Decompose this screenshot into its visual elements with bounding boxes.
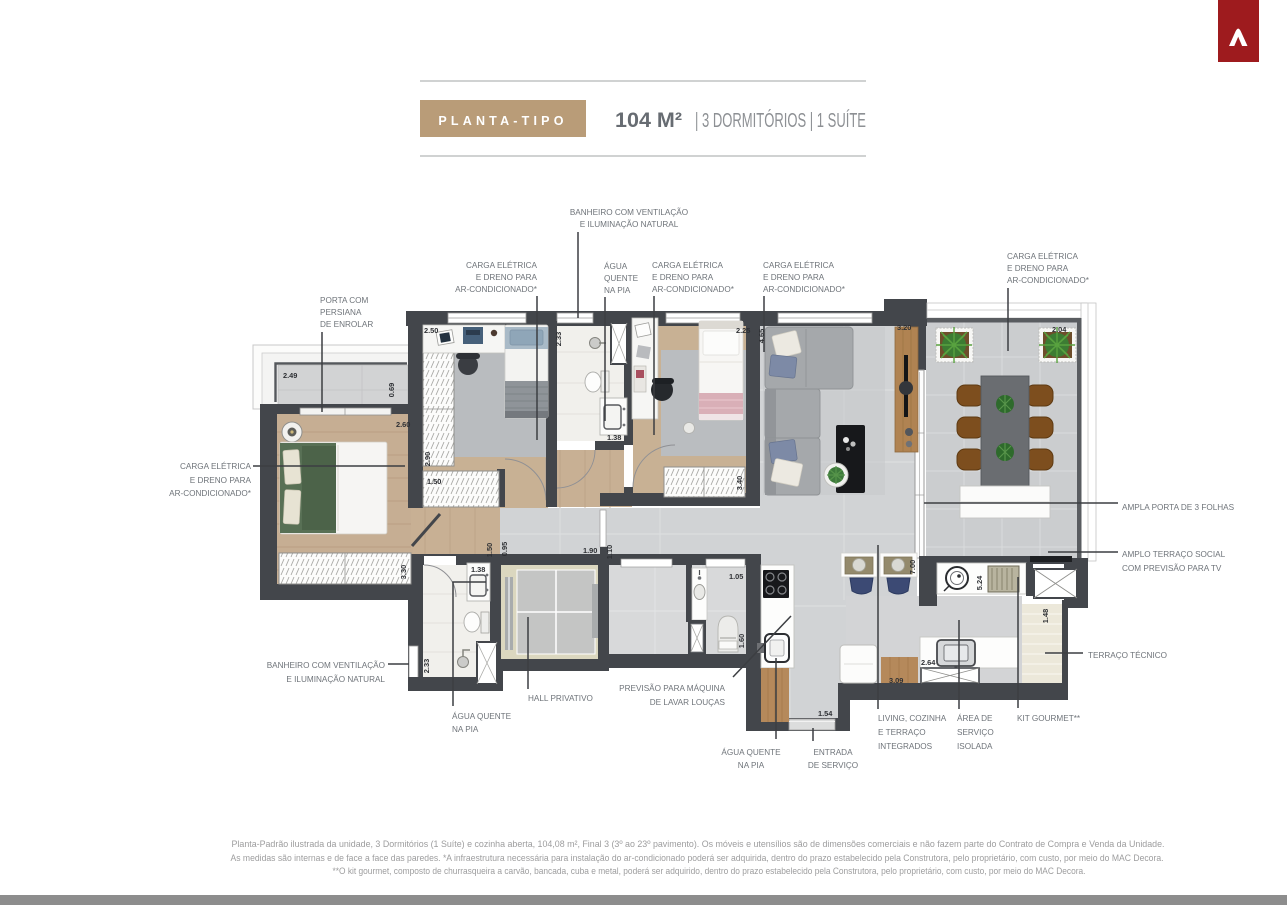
svg-text:2.25: 2.25	[736, 326, 750, 335]
svg-text:1.50: 1.50	[427, 477, 441, 486]
svg-text:HALL PRIVATIVO: HALL PRIVATIVO	[528, 694, 593, 703]
svg-text:3.40: 3.40	[735, 476, 744, 490]
svg-text:| 3 DORMITÓRIOS | 1 SUÍTE: | 3 DORMITÓRIOS | 1 SUÍTE	[695, 109, 866, 132]
svg-text:E ILUMINAÇÃO NATURAL: E ILUMINAÇÃO NATURAL	[580, 219, 679, 229]
svg-text:1.54: 1.54	[818, 709, 833, 718]
svg-text:2.50: 2.50	[424, 326, 438, 335]
svg-text:As medidas são internas e de f: As medidas são internas e de face a face…	[231, 853, 1164, 863]
svg-text:ÁGUA QUENTE: ÁGUA QUENTE	[452, 711, 512, 721]
svg-text:2.60: 2.60	[396, 420, 410, 429]
svg-text:Planta-Padrão ilustrada da uni: Planta-Padrão ilustrada da unidade, 3 Do…	[232, 839, 1165, 849]
svg-text:KIT GOURMET**: KIT GOURMET**	[1017, 714, 1081, 723]
svg-text:CARGA ELÉTRICA: CARGA ELÉTRICA	[1007, 251, 1079, 261]
svg-text:5.24: 5.24	[975, 575, 984, 590]
svg-text:104 M²: 104 M²	[615, 109, 682, 132]
svg-text:SERVIÇO: SERVIÇO	[957, 728, 994, 737]
svg-text:AMPLO TERRAÇO SOCIAL: AMPLO TERRAÇO SOCIAL	[1122, 550, 1226, 559]
svg-text:PORTA COM: PORTA COM	[320, 296, 369, 305]
svg-text:1.38: 1.38	[607, 433, 621, 442]
svg-text:2.64: 2.64	[921, 658, 936, 667]
svg-text:3.20: 3.20	[897, 323, 911, 332]
svg-text:CARGA ELÉTRICA: CARGA ELÉTRICA	[466, 260, 538, 270]
svg-text:AMPLA PORTA DE 3 FOLHAS: AMPLA PORTA DE 3 FOLHAS	[1122, 503, 1235, 512]
svg-text:AR-CONDICIONADO*: AR-CONDICIONADO*	[455, 285, 538, 294]
svg-text:NA PIA: NA PIA	[604, 286, 631, 295]
svg-text:3.30: 3.30	[399, 565, 408, 579]
svg-text:CARGA ELÉTRICA: CARGA ELÉTRICA	[763, 260, 835, 270]
svg-text:1.50: 1.50	[485, 543, 494, 557]
svg-text:PERSIANA: PERSIANA	[320, 308, 362, 317]
svg-text:0.95: 0.95	[500, 542, 509, 556]
svg-text:LIVING, COZINHA: LIVING, COZINHA	[878, 714, 947, 723]
svg-text:ENTRADA: ENTRADA	[813, 748, 853, 757]
svg-text:INTEGRADOS: INTEGRADOS	[878, 742, 933, 751]
svg-text:**O kit gourmet, composto de c: **O kit gourmet, composto de churrasquei…	[333, 866, 1086, 876]
svg-text:ÁREA DE: ÁREA DE	[957, 713, 993, 723]
svg-text:BANHEIRO COM VENTILAÇÃO: BANHEIRO COM VENTILAÇÃO	[570, 207, 688, 217]
svg-text:ISOLADA: ISOLADA	[957, 742, 993, 751]
svg-text:0.69: 0.69	[387, 383, 396, 397]
svg-text:7.00: 7.00	[908, 560, 917, 574]
svg-text:COM PREVISÃO PARA TV: COM PREVISÃO PARA TV	[1122, 563, 1222, 573]
svg-text:2.33: 2.33	[554, 332, 563, 346]
svg-text:1.38: 1.38	[471, 565, 485, 574]
svg-text:1.10: 1.10	[605, 545, 614, 559]
svg-text:E DRENO PARA: E DRENO PARA	[476, 273, 538, 282]
svg-text:QUENTE: QUENTE	[604, 274, 639, 283]
svg-text:1.05: 1.05	[729, 572, 743, 581]
svg-text:NA PIA: NA PIA	[738, 761, 765, 770]
svg-text:ÁGUA QUENTE: ÁGUA QUENTE	[721, 747, 781, 757]
svg-text:ÁGUA: ÁGUA	[604, 261, 628, 271]
svg-text:NA PIA: NA PIA	[452, 725, 479, 734]
svg-text:1.90: 1.90	[583, 546, 597, 555]
svg-text:DE SERVIÇO: DE SERVIÇO	[808, 761, 858, 770]
svg-text:2.33: 2.33	[422, 659, 431, 673]
svg-text:AR-CONDICIONADO*: AR-CONDICIONADO*	[652, 285, 735, 294]
svg-text:E DRENO PARA: E DRENO PARA	[652, 273, 714, 282]
svg-text:DE LAVAR LOUÇAS: DE LAVAR LOUÇAS	[650, 698, 726, 707]
svg-text:PLANTA-TIPO: PLANTA-TIPO	[438, 114, 567, 128]
svg-text:E DRENO PARA: E DRENO PARA	[190, 476, 252, 485]
svg-text:BANHEIRO COM VENTILAÇÃO: BANHEIRO COM VENTILAÇÃO	[267, 660, 385, 670]
svg-text:3.09: 3.09	[889, 676, 903, 685]
svg-text:E TERRAÇO: E TERRAÇO	[878, 728, 926, 737]
svg-text:DE ENROLAR: DE ENROLAR	[320, 320, 373, 329]
svg-text:AR-CONDICIONADO*: AR-CONDICIONADO*	[169, 489, 252, 498]
svg-text:PREVISÃO PARA MÁQUINA: PREVISÃO PARA MÁQUINA	[619, 683, 725, 693]
svg-text:4.65: 4.65	[757, 329, 766, 343]
svg-text:1.48: 1.48	[1041, 609, 1050, 623]
svg-text:E ILUMINAÇÃO NATURAL: E ILUMINAÇÃO NATURAL	[286, 674, 385, 684]
svg-text:AR-CONDICIONADO*: AR-CONDICIONADO*	[763, 285, 846, 294]
svg-text:TERRAÇO TÉCNICO: TERRAÇO TÉCNICO	[1088, 650, 1167, 660]
svg-text:2.90: 2.90	[423, 452, 432, 466]
svg-text:AR-CONDICIONADO*: AR-CONDICIONADO*	[1007, 276, 1090, 285]
svg-text:2.04: 2.04	[1052, 325, 1067, 334]
svg-text:CARGA ELÉTRICA: CARGA ELÉTRICA	[180, 461, 252, 471]
svg-text:E DRENO PARA: E DRENO PARA	[763, 273, 825, 282]
svg-text:1.60: 1.60	[737, 634, 746, 648]
svg-text:2.49: 2.49	[283, 371, 297, 380]
svg-text:CARGA ELÉTRICA: CARGA ELÉTRICA	[652, 260, 724, 270]
svg-text:E DRENO PARA: E DRENO PARA	[1007, 264, 1069, 273]
